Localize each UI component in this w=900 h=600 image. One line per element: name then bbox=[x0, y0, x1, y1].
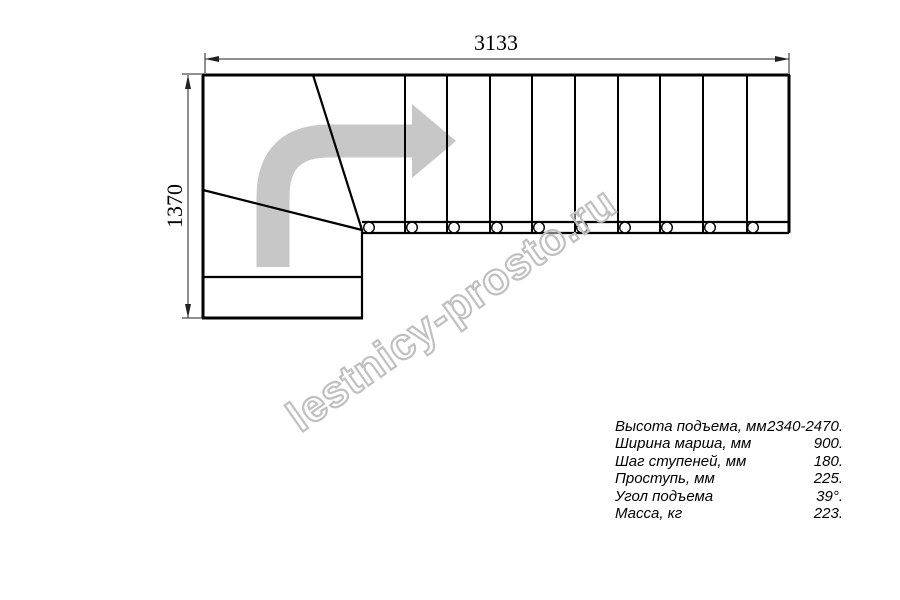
baluster-circle bbox=[364, 222, 375, 233]
spec-label: Масса, кг bbox=[615, 505, 682, 522]
dim-arrow-top bbox=[185, 75, 191, 89]
spec-label: Высота подъема, мм bbox=[615, 418, 767, 435]
spec-value: 180. bbox=[814, 453, 843, 470]
spec-value: 2340-2470. bbox=[767, 418, 843, 435]
baluster-markers bbox=[364, 222, 759, 233]
spec-value: 223. bbox=[814, 505, 843, 522]
spec-row: Угол подъема 39°. bbox=[615, 488, 843, 505]
baluster-circle bbox=[662, 222, 673, 233]
baluster-circle bbox=[534, 222, 545, 233]
dim-arrow-bottom bbox=[185, 304, 191, 318]
spec-value: 900. bbox=[814, 435, 843, 452]
spec-value: 39°. bbox=[816, 488, 843, 505]
spec-row: Проступь, мм 225. bbox=[615, 470, 843, 487]
staircase-drawing-page: 3133 1370 lestnicy-prosto.ru Высота подъ… bbox=[0, 0, 900, 600]
baluster-circle bbox=[407, 222, 418, 233]
direction-arrow-head bbox=[412, 104, 456, 178]
baluster-circle bbox=[620, 222, 631, 233]
dim-arrow-right bbox=[775, 56, 789, 62]
step-lines bbox=[405, 75, 747, 233]
spec-label: Проступь, мм bbox=[615, 470, 715, 487]
spec-row: Шаг ступеней, мм 180. bbox=[615, 453, 843, 470]
spec-label: Ширина марша, мм bbox=[615, 435, 751, 452]
direction-arrow-body bbox=[273, 141, 412, 267]
baluster-circle bbox=[577, 222, 588, 233]
stair-direction-arrow-icon bbox=[273, 104, 456, 267]
spec-label: Шаг ступеней, мм bbox=[615, 453, 746, 470]
spec-value: 225. bbox=[814, 470, 843, 487]
baluster-circle bbox=[748, 222, 759, 233]
baluster-circle bbox=[449, 222, 460, 233]
spec-label: Угол подъема bbox=[615, 488, 713, 505]
spec-table: Высота подъема, мм 2340-2470. Ширина мар… bbox=[615, 418, 843, 522]
dimension-height-value: 1370 bbox=[162, 156, 188, 256]
dimension-width bbox=[205, 53, 789, 73]
spec-row: Масса, кг 223. bbox=[615, 505, 843, 522]
dimension-width-value: 3133 bbox=[446, 30, 546, 56]
baluster-circle bbox=[492, 222, 503, 233]
spec-row: Высота подъема, мм 2340-2470. bbox=[615, 418, 843, 435]
staircase-outline bbox=[202, 75, 790, 318]
baluster-circle bbox=[705, 222, 716, 233]
spec-row: Ширина марша, мм 900. bbox=[615, 435, 843, 452]
dim-arrow-left bbox=[205, 56, 219, 62]
